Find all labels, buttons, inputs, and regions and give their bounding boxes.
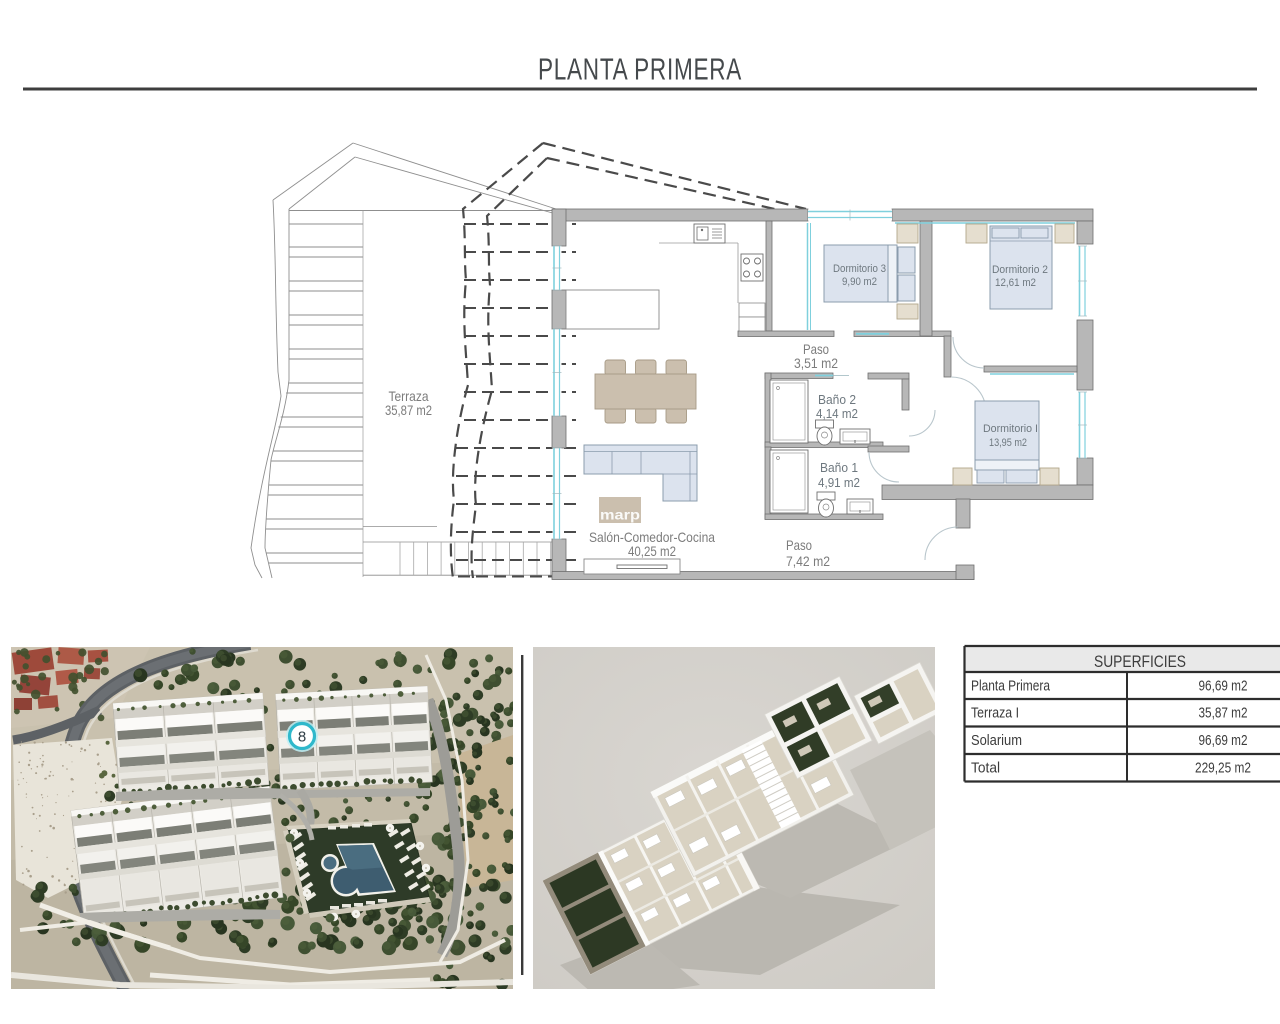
svg-text:229,25 m2: 229,25 m2 <box>1195 760 1251 777</box>
svg-text:35,87 m2: 35,87 m2 <box>1199 705 1248 722</box>
svg-text:12,61 m2: 12,61 m2 <box>995 277 1036 289</box>
svg-text:Dormitorio I: Dormitorio I <box>983 423 1038 435</box>
svg-text:96,69 m2: 96,69 m2 <box>1199 678 1248 695</box>
svg-text:marp: marp <box>600 508 640 523</box>
svg-text:3,51 m2: 3,51 m2 <box>794 355 838 371</box>
svg-text:35,87 m2: 35,87 m2 <box>385 402 432 418</box>
svg-text:9,90 m2: 9,90 m2 <box>842 276 877 288</box>
svg-text:8: 8 <box>298 729 306 746</box>
svg-text:4,91 m2: 4,91 m2 <box>818 475 860 490</box>
svg-text:13,95 m2: 13,95 m2 <box>989 437 1027 449</box>
svg-text:PLANTA PRIMERA: PLANTA PRIMERA <box>538 52 742 87</box>
svg-text:4,14 m2: 4,14 m2 <box>816 406 858 421</box>
svg-text:96,69 m2: 96,69 m2 <box>1199 732 1248 749</box>
svg-text:Baño 2: Baño 2 <box>818 392 856 407</box>
svg-text:Solarium: Solarium <box>971 732 1022 749</box>
svg-text:Planta Primera: Planta Primera <box>971 678 1051 695</box>
svg-text:7,42 m2: 7,42 m2 <box>786 553 830 569</box>
svg-text:SUPERFICIES: SUPERFICIES <box>1094 652 1186 671</box>
svg-text:Dormitorio 3: Dormitorio 3 <box>833 263 886 275</box>
svg-text:Terraza I: Terraza I <box>971 705 1019 722</box>
svg-text:Baño 1: Baño 1 <box>820 460 858 475</box>
svg-text:Paso: Paso <box>786 537 812 553</box>
svg-text:Total: Total <box>971 760 1000 777</box>
svg-text:Dormitorio 2: Dormitorio 2 <box>992 264 1048 276</box>
svg-text:40,25 m2: 40,25 m2 <box>628 543 676 559</box>
